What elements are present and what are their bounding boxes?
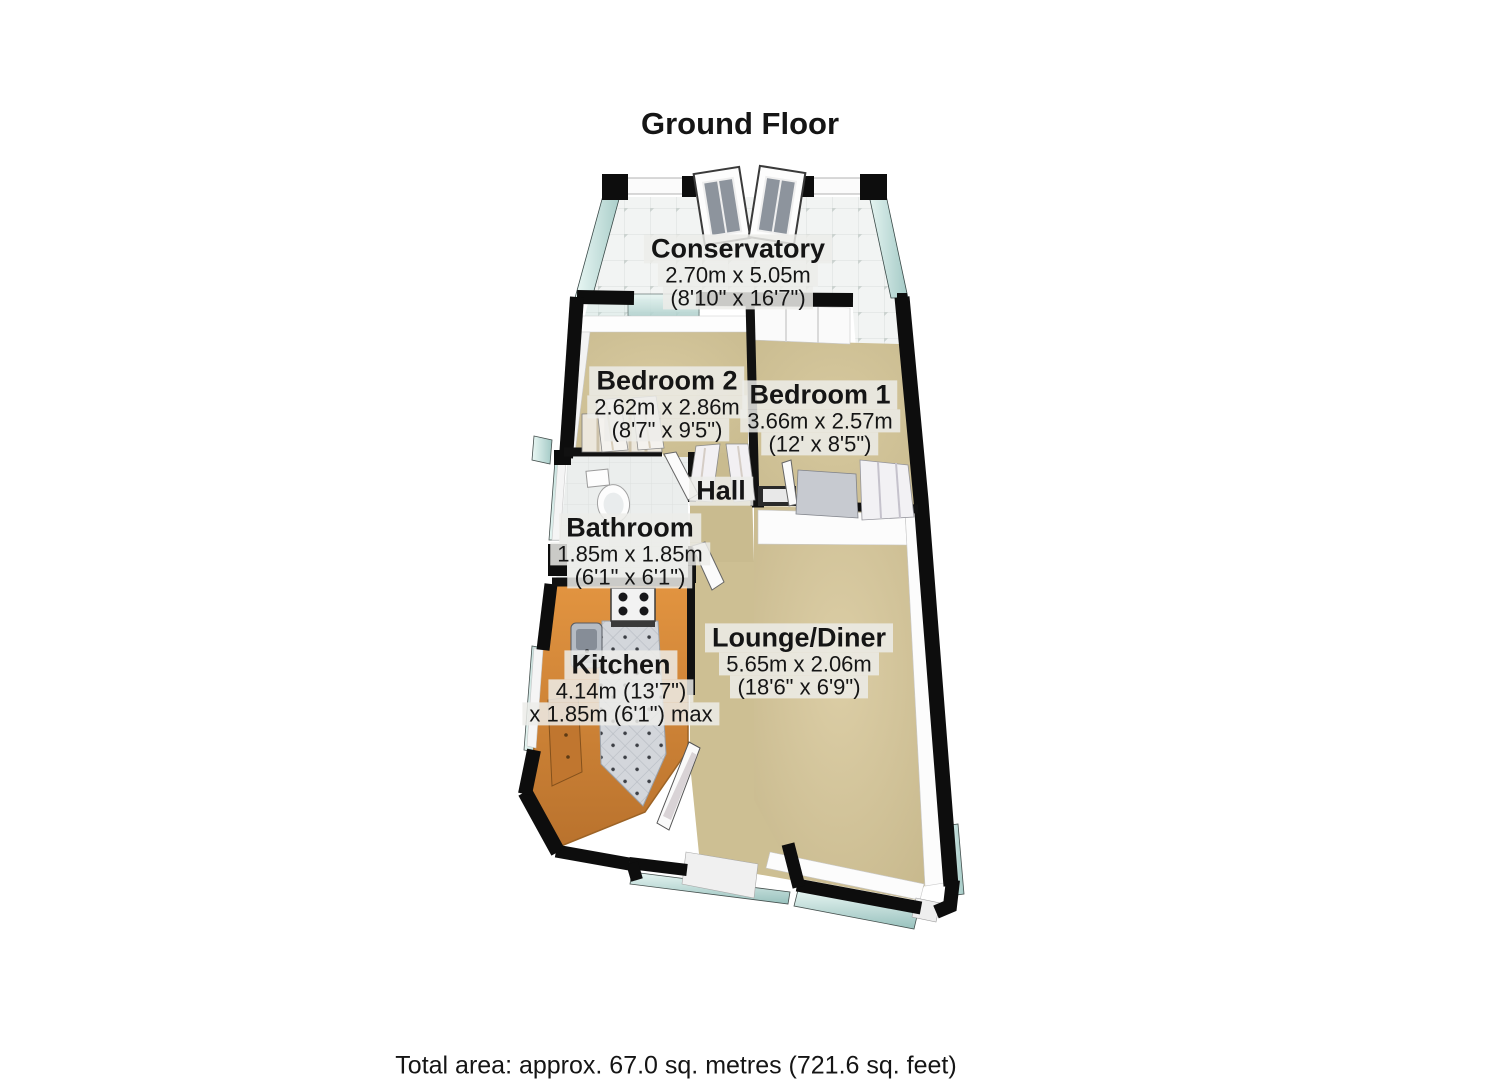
lounge-size-metric: 5.65m x 2.06m xyxy=(719,652,879,675)
page-title: Ground Floor xyxy=(641,106,839,142)
kitchen-size-metric: 4.14m (13'7") xyxy=(549,679,694,702)
bedroom1-wardrobe xyxy=(860,460,914,520)
floor-plan-rendering xyxy=(0,0,1485,1080)
lounge-name: Lounge/Diner xyxy=(705,623,893,652)
bedroom1-name: Bedroom 1 xyxy=(742,380,897,409)
total-area-text: Total area: approx. 67.0 sq. metres (721… xyxy=(395,1052,956,1080)
bedroom2-name: Bedroom 2 xyxy=(589,366,744,395)
bedroom2-size-metric: 2.62m x 2.86m xyxy=(587,395,747,418)
bathroom-size-imperial: (6'1" x 6'1") xyxy=(568,565,693,588)
lounge-size-imperial: (18'6" x 6'9") xyxy=(730,675,867,698)
floor-plan-page: Ground Floor Conservatory 2.70m x 5.05m … xyxy=(0,0,1485,1080)
hall-label: Hall xyxy=(689,477,753,506)
bedroom2-label: Bedroom 2 2.62m x 2.86m (8'7" x 9'5") xyxy=(587,366,747,441)
conservatory-size-imperial: (8'10" x 16'7") xyxy=(663,286,812,309)
bathroom-name: Bathroom xyxy=(559,513,701,542)
kitchen-size-imperial: x 1.85m (6'1") max xyxy=(522,702,719,725)
lounge-label: Lounge/Diner 5.65m x 2.06m (18'6" x 6'9"… xyxy=(705,623,893,698)
kitchen-label: Kitchen 4.14m (13'7") x 1.85m (6'1") max xyxy=(522,650,719,725)
bedroom1-label: Bedroom 1 3.66m x 2.57m (12' x 8'5") xyxy=(740,380,900,455)
bedroom1-size-imperial: (12' x 8'5") xyxy=(761,432,878,455)
kitchen-name: Kitchen xyxy=(564,650,677,679)
conservatory-size-metric: 2.70m x 5.05m xyxy=(658,263,818,286)
conservatory-label: Conservatory 2.70m x 5.05m (8'10" x 16'7… xyxy=(644,234,832,309)
bedroom2-size-imperial: (8'7" x 9'5") xyxy=(605,418,730,441)
lounge-floor xyxy=(754,506,925,900)
hall-name: Hall xyxy=(689,477,753,506)
kitchen-hob xyxy=(611,588,655,627)
conservatory-name: Conservatory xyxy=(644,234,832,263)
bathroom-label: Bathroom 1.85m x 1.85m (6'1" x 6'1") xyxy=(550,513,710,588)
bedroom1-size-metric: 3.66m x 2.57m xyxy=(740,409,900,432)
bathroom-size-metric: 1.85m x 1.85m xyxy=(550,542,710,565)
bedroom1-bed xyxy=(796,470,858,518)
